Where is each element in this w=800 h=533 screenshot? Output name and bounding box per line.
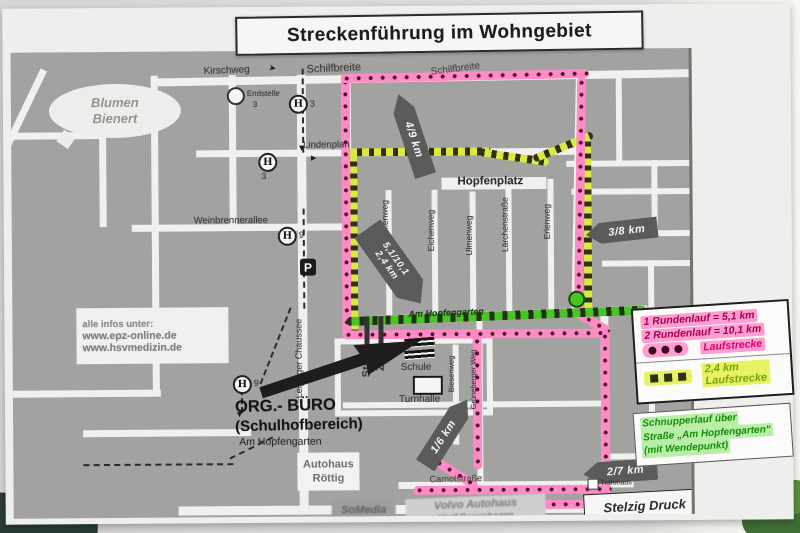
tram-stop-icon: H [258, 153, 277, 172]
parking-letter: P [304, 260, 312, 274]
street-label-biesenweg: Biesenweg [447, 356, 456, 393]
stelzig-label: Stelzig Druck [603, 496, 686, 515]
legend-box: 1 Rundenlauf = 5,1 km 2 Rundenlauf = 10,… [631, 299, 795, 405]
info-line1: alle infos unter: [82, 318, 153, 329]
org-buero-line1: ORG.- BÜRO [235, 396, 336, 417]
tram-stop-icon: H [289, 95, 308, 114]
turnhalle-building-icon [413, 376, 443, 395]
stop-letter: H [294, 99, 304, 110]
direction-arrow-icon: ► [309, 153, 318, 163]
street [547, 179, 554, 317]
pink-route-swatch [642, 341, 689, 358]
blumen-bienert-bubble: Blumen Bienert [49, 84, 181, 139]
direction-arrow-icon: ➤ [267, 62, 277, 75]
trafohaus-label: Trafohaus [601, 479, 632, 486]
street [99, 132, 107, 227]
legend-pink-route-label: Laufstrecke [700, 337, 766, 354]
street-label-erlenweg: Erlenweg [542, 204, 552, 240]
km-marker-3-8: 3/8 km [585, 216, 659, 245]
street-label-ulmenweg: Ulmenweg [464, 215, 474, 255]
stop-line: 9 [299, 230, 304, 240]
endstelle-label: Endstelle [247, 89, 280, 98]
trafohaus-icon [588, 479, 599, 490]
somedia-box: SoMedia [332, 500, 396, 519]
route-pink-segment [341, 76, 352, 338]
autohaus-line1: Autohaus [303, 457, 354, 471]
km-marker-text: 3/8 km [608, 222, 646, 238]
street-label-carnotstrasse: Carnotstraße [429, 473, 482, 484]
street [13, 390, 161, 398]
wendepunkt-icon [568, 291, 585, 308]
info-url-2: www.hsvmedizin.de [83, 341, 182, 354]
tram-stop-icon: H [233, 375, 252, 394]
start-line-bar [364, 316, 369, 348]
street [602, 260, 690, 267]
stelzig-druck-box: Stelzig Druck [583, 488, 695, 518]
org-buero-line2: (Schulhofbereich) [235, 415, 363, 435]
street-label-grueneberger-weg: Grüneberger Weg [469, 349, 478, 409]
stop-line: 3 [261, 171, 266, 181]
street-label-laerchenstrasse: Lärchenstraße [500, 197, 510, 252]
autohaus-roettig-box: Autohaus Röttig [297, 452, 359, 490]
yellow-route-swatch [644, 369, 693, 386]
blumen-line1: Blumen [91, 95, 139, 111]
info-box: alle infos unter: www.epz-online.de www.… [76, 307, 228, 364]
photo-of-route-map: Streckenführung im Wohngebiet [0, 0, 800, 533]
street [616, 72, 623, 162]
map-paper: Streckenführung im Wohngebiet [2, 3, 794, 524]
km-marker-text: 1/6 km [428, 418, 458, 456]
stop-letter: H [238, 379, 248, 390]
blumen-line2: Bienert [93, 111, 138, 127]
street-label-hopfenplatz: Hopfenplatz [457, 175, 523, 187]
legend-green-note: Schnupperlauf über Straße „Am Hopfengart… [633, 403, 794, 467]
volvo-autohaus-box: Volvo Autohaus Wolf Degenhagen [405, 494, 546, 519]
turnhalle-label: Turnhalle [399, 394, 440, 405]
stop-line: 3 [310, 99, 315, 109]
somedia-label: SoMedia [341, 504, 386, 516]
info-url-1: www.epz-online.de [82, 329, 176, 342]
org-buero-line3: Am Hopfengarten [239, 436, 321, 449]
footpath [260, 307, 292, 384]
stop-line: 9 [254, 378, 259, 388]
map-canvas: ▼ ▼ ➤ ► Am Hopfengarten [11, 48, 695, 519]
route-pink-segment [414, 485, 612, 495]
stop-letter: H [263, 157, 273, 168]
street-label-lindenplan: Lindenplan [303, 139, 350, 150]
stop-letter: H [283, 231, 293, 242]
km-marker-4-9: 4/9 km [388, 91, 436, 180]
endstelle-icon [227, 87, 245, 105]
page-title: Streckenführung im Wohngebiet [287, 20, 592, 47]
tram-stop-icon: H [278, 227, 297, 246]
schule-label: Schule [401, 362, 432, 373]
footpath [83, 463, 233, 466]
autohaus-line2: Röttig [313, 471, 345, 485]
street-label-weinbrennerallee: Weinbrennerallee [194, 215, 268, 227]
endstelle-line: 3 [253, 100, 258, 109]
km-marker-finish: 5,1/10,1 2,4 km [354, 219, 433, 313]
street [83, 429, 251, 437]
title-banner: Streckenführung im Wohngebiet [235, 11, 644, 56]
street-label-schilfbreite: Schilfbreite [306, 61, 361, 75]
street-label-eichenweg: Eichenweg [426, 210, 436, 252]
street [11, 68, 47, 193]
street-label-kirschweg: Kirschweg [203, 64, 250, 77]
parking-icon: P [300, 259, 316, 276]
